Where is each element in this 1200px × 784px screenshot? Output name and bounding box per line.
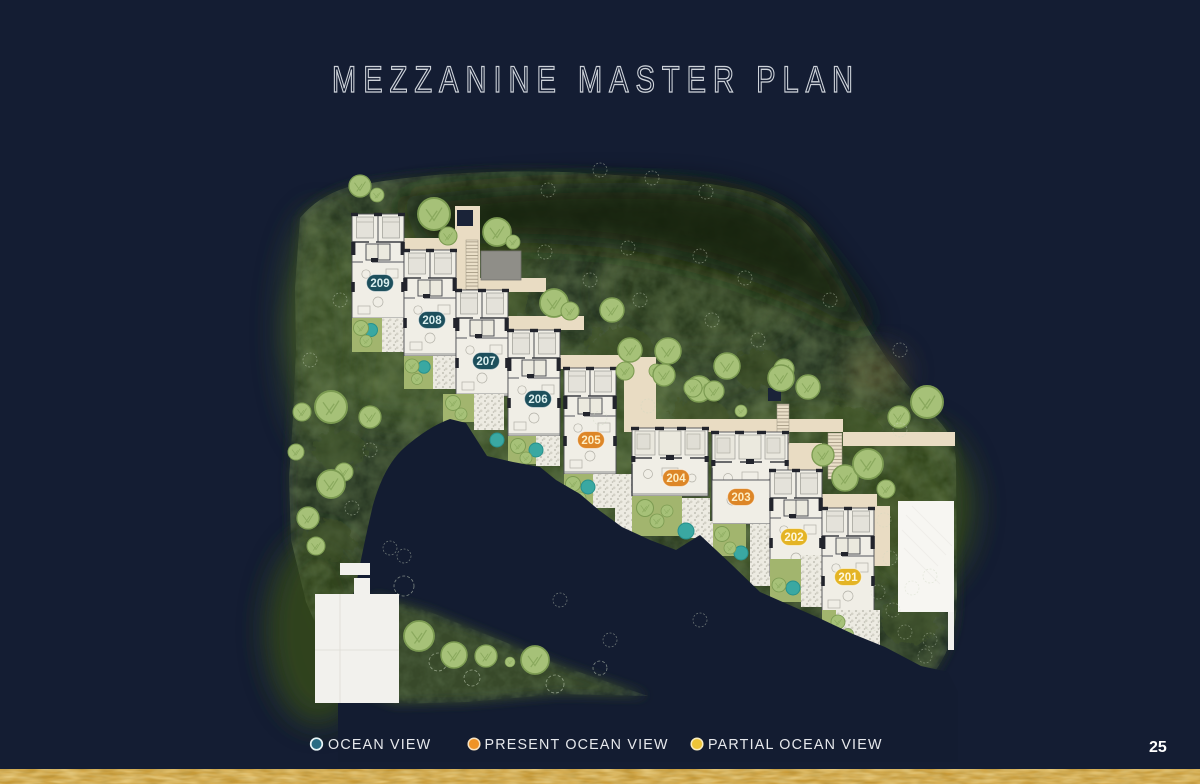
svg-text:203: 203: [731, 492, 750, 504]
svg-text:PRESENT OCEAN VIEW: PRESENT OCEAN VIEW: [485, 737, 669, 753]
svg-text:206: 206: [528, 394, 547, 406]
svg-text:204: 204: [666, 473, 686, 485]
svg-text:202: 202: [784, 532, 803, 544]
svg-text:205: 205: [581, 435, 601, 447]
svg-text:PARTIAL OCEAN VIEW: PARTIAL OCEAN VIEW: [708, 737, 883, 753]
svg-text:208: 208: [422, 315, 442, 327]
svg-text:201: 201: [838, 572, 858, 584]
svg-text:207: 207: [476, 356, 495, 368]
svg-text:MEZZANINE MASTER PLAN: MEZZANINE MASTER PLAN: [332, 58, 860, 100]
svg-text:25: 25: [1149, 739, 1167, 756]
svg-text:209: 209: [370, 278, 389, 290]
svg-text:OCEAN VIEW: OCEAN VIEW: [328, 737, 431, 753]
